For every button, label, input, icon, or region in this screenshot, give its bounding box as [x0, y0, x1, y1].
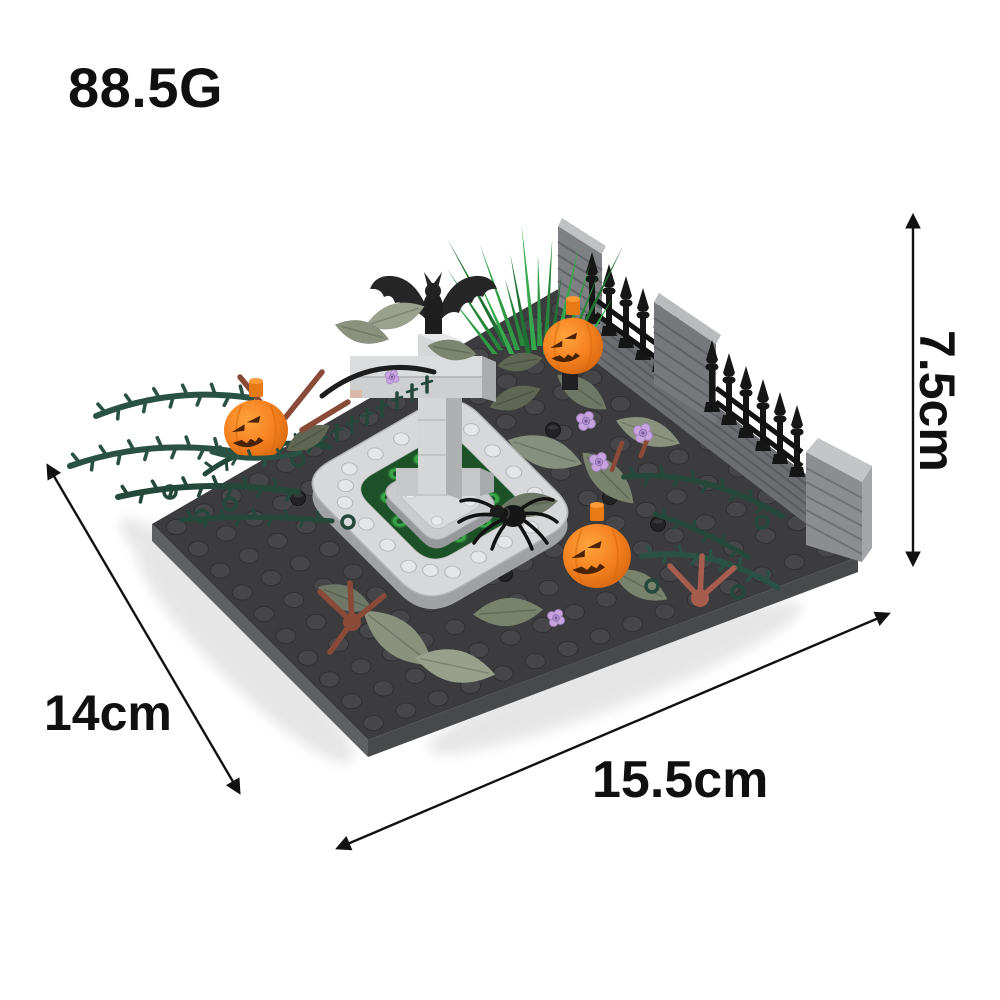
- product-image: 88.5G 7.5cm 14cm 15.5cm: [0, 0, 1000, 1000]
- width-label: 15.5cm: [592, 754, 768, 806]
- height-label: 7.5cm: [912, 330, 962, 472]
- depth-label: 14cm: [44, 688, 172, 738]
- stone-wall-end-pillar: [806, 438, 872, 562]
- lego-graveyard-scene: [0, 0, 1000, 1000]
- weight-label: 88.5G: [68, 60, 223, 116]
